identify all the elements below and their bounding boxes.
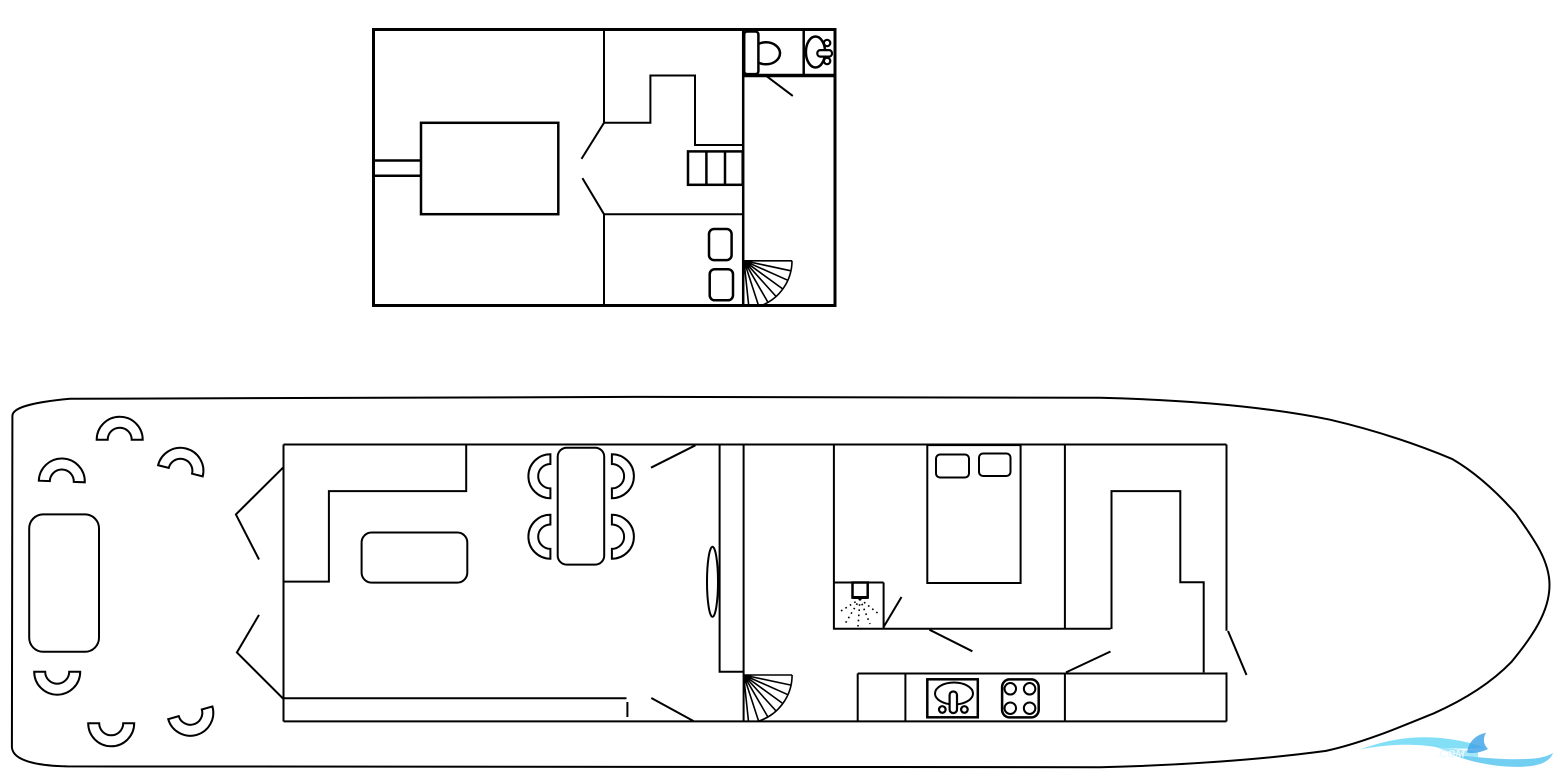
svg-text:.COM: .COM	[1436, 749, 1466, 761]
